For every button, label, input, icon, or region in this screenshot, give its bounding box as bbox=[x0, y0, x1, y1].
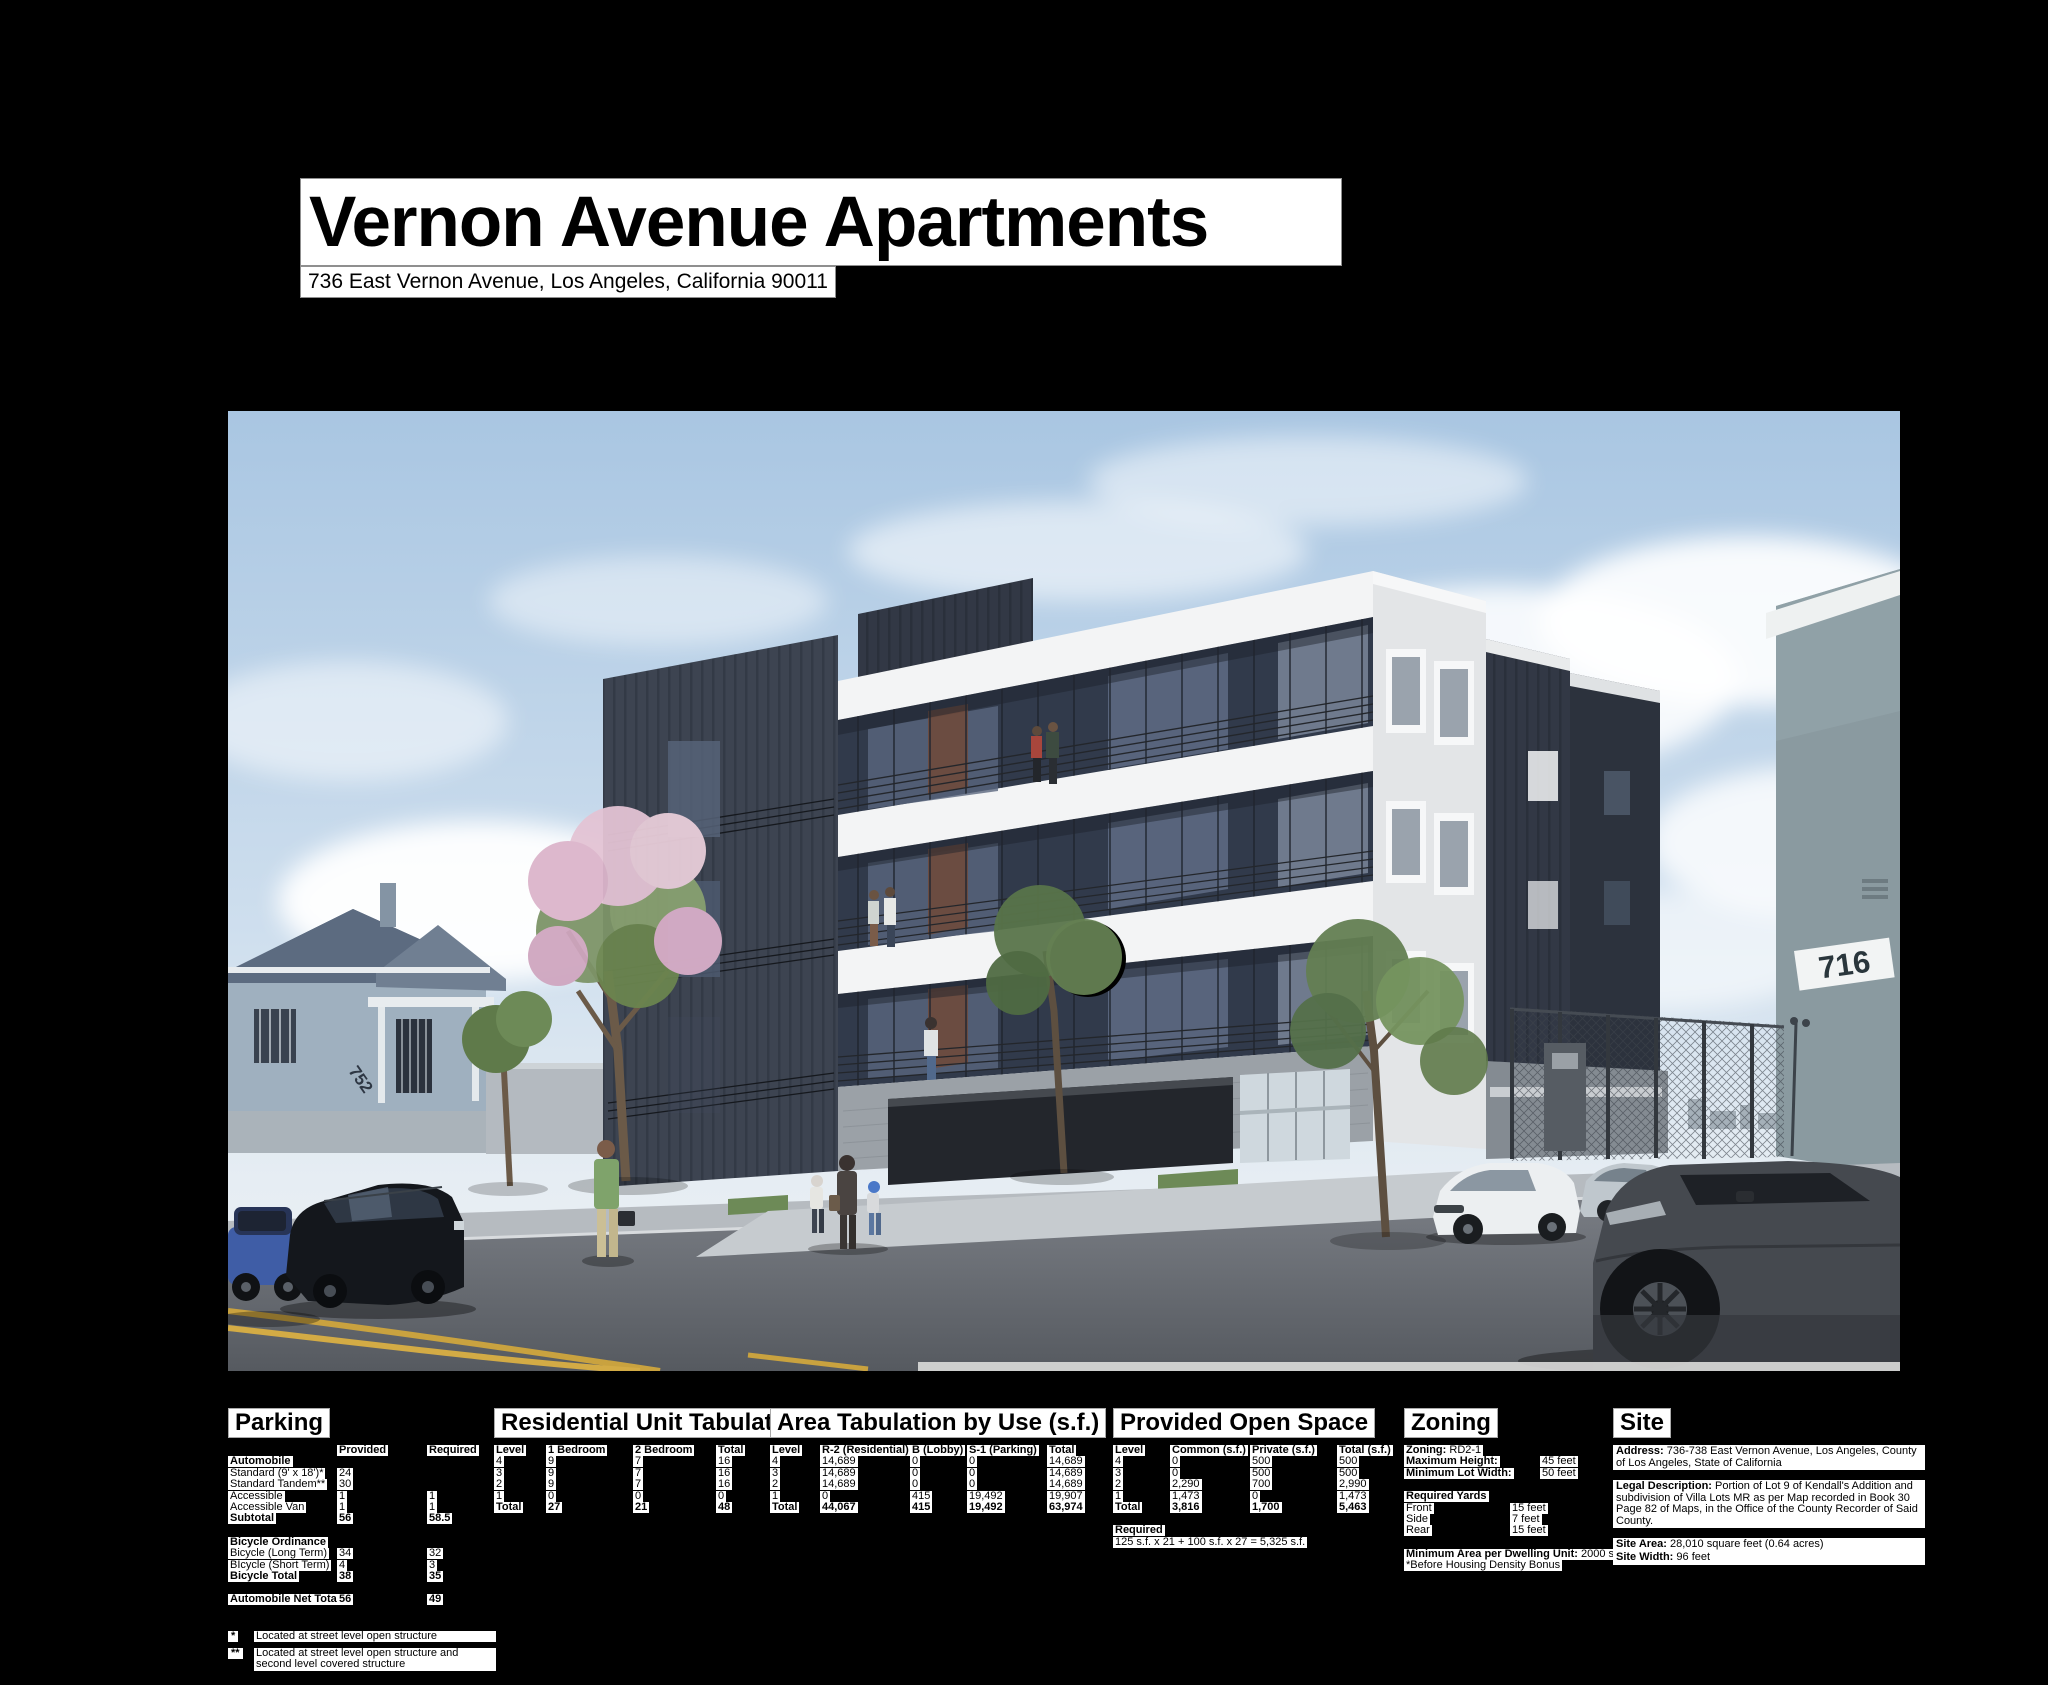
min-lot-width: Minimum Lot Width:50 feet bbox=[1404, 1468, 1624, 1479]
table-row: Standard Tandem**30 bbox=[228, 1479, 478, 1490]
table-row: Bicycle (Long Term)3432 bbox=[228, 1548, 478, 1559]
page-title: Vernon Avenue Apartments bbox=[301, 182, 1216, 263]
parking-title: Parking bbox=[228, 1408, 330, 1438]
residential-unit-table: Residential Unit Tabulation Level 1 Bedr… bbox=[494, 1408, 754, 1513]
site-address: Address: 736-738 East Vernon Avenue, Los… bbox=[1613, 1445, 1925, 1470]
title-block: Vernon Avenue Apartments bbox=[300, 178, 1342, 266]
building-rendering: 716 752 bbox=[228, 411, 1900, 1371]
site-info: Site Address: 736-738 East Vernon Avenue… bbox=[1613, 1408, 1933, 1565]
zoning-title: Zoning bbox=[1404, 1408, 1498, 1438]
table-row: 314,6890014,689 bbox=[770, 1468, 1090, 1479]
table-row: 414,6890014,689 bbox=[770, 1456, 1090, 1467]
table-header: Level 1 Bedroom 2 Bedroom Total bbox=[494, 1445, 754, 1456]
footnote: ** Located at street level open structur… bbox=[228, 1648, 478, 1674]
table-row: 49716 bbox=[494, 1456, 754, 1467]
table-total-row: Total272148 bbox=[494, 1502, 754, 1513]
svg-text:716: 716 bbox=[1816, 944, 1872, 986]
area-tabulation-table: Area Tabulation by Use (s.f.) Level R-2 … bbox=[770, 1408, 1090, 1513]
zoning-table: Zoning Zoning: RD2-1 Maximum Height:45 f… bbox=[1404, 1408, 1624, 1572]
open-space-required-heading: Required bbox=[1113, 1525, 1165, 1536]
site-dimensions: Site Area: 28,010 square feet (0.64 acre… bbox=[1613, 1538, 1925, 1565]
table-row: Automobile Net Total5649 bbox=[228, 1594, 478, 1605]
table-row: Bicycle Total3835 bbox=[228, 1571, 478, 1582]
table-row: 214,6890014,689 bbox=[770, 1479, 1090, 1490]
table-row: 1041519,49219,907 bbox=[770, 1491, 1090, 1502]
open-space-table: Provided Open Space Level Common (s.f.) … bbox=[1113, 1408, 1403, 1548]
table-total-row: Total3,8161,7005,463 bbox=[1113, 1502, 1403, 1513]
neighbor-building-716: 716 bbox=[1766, 569, 1900, 1176]
open-space-required-formula: 125 s.f. x 21 + 100 s.f. x 27 = 5,325 s.… bbox=[1113, 1537, 1307, 1548]
table-row: 1000 bbox=[494, 1491, 754, 1502]
project-address: 736 East Vernon Avenue, Los Angeles, Cal… bbox=[300, 266, 836, 298]
open-space-title: Provided Open Space bbox=[1113, 1408, 1375, 1438]
table-total-row: Total44,06741519,49263,974 bbox=[770, 1502, 1090, 1513]
density-bonus-note: *Before Housing Density Bonus bbox=[1404, 1560, 1562, 1571]
yard-rear: Rear15 feet bbox=[1404, 1525, 1624, 1536]
table-row: Subtotal5658.5 bbox=[228, 1513, 478, 1524]
footnote: * Located at street level open structure bbox=[228, 1631, 478, 1645]
residential-title: Residential Unit Tabulation bbox=[494, 1408, 816, 1438]
table-header: Level R-2 (Residential) B (Lobby) S-1 (P… bbox=[770, 1445, 1090, 1456]
chain-link-fence bbox=[1510, 1007, 1784, 1161]
table-row: 39716 bbox=[494, 1468, 754, 1479]
table-row: 22,2907002,990 bbox=[1113, 1479, 1403, 1490]
table-row: 29716 bbox=[494, 1479, 754, 1490]
photo-edge bbox=[918, 1362, 1900, 1371]
site-legal-description: Legal Description: Portion of Lot 9 of K… bbox=[1613, 1480, 1925, 1528]
parking-table: Parking Provided Required Automobile Sta… bbox=[228, 1408, 478, 1674]
site-title: Site bbox=[1613, 1408, 1671, 1438]
area-title: Area Tabulation by Use (s.f.) bbox=[770, 1408, 1106, 1438]
presentation-board: Vernon Avenue Apartments 736 East Vernon… bbox=[0, 0, 2048, 1685]
